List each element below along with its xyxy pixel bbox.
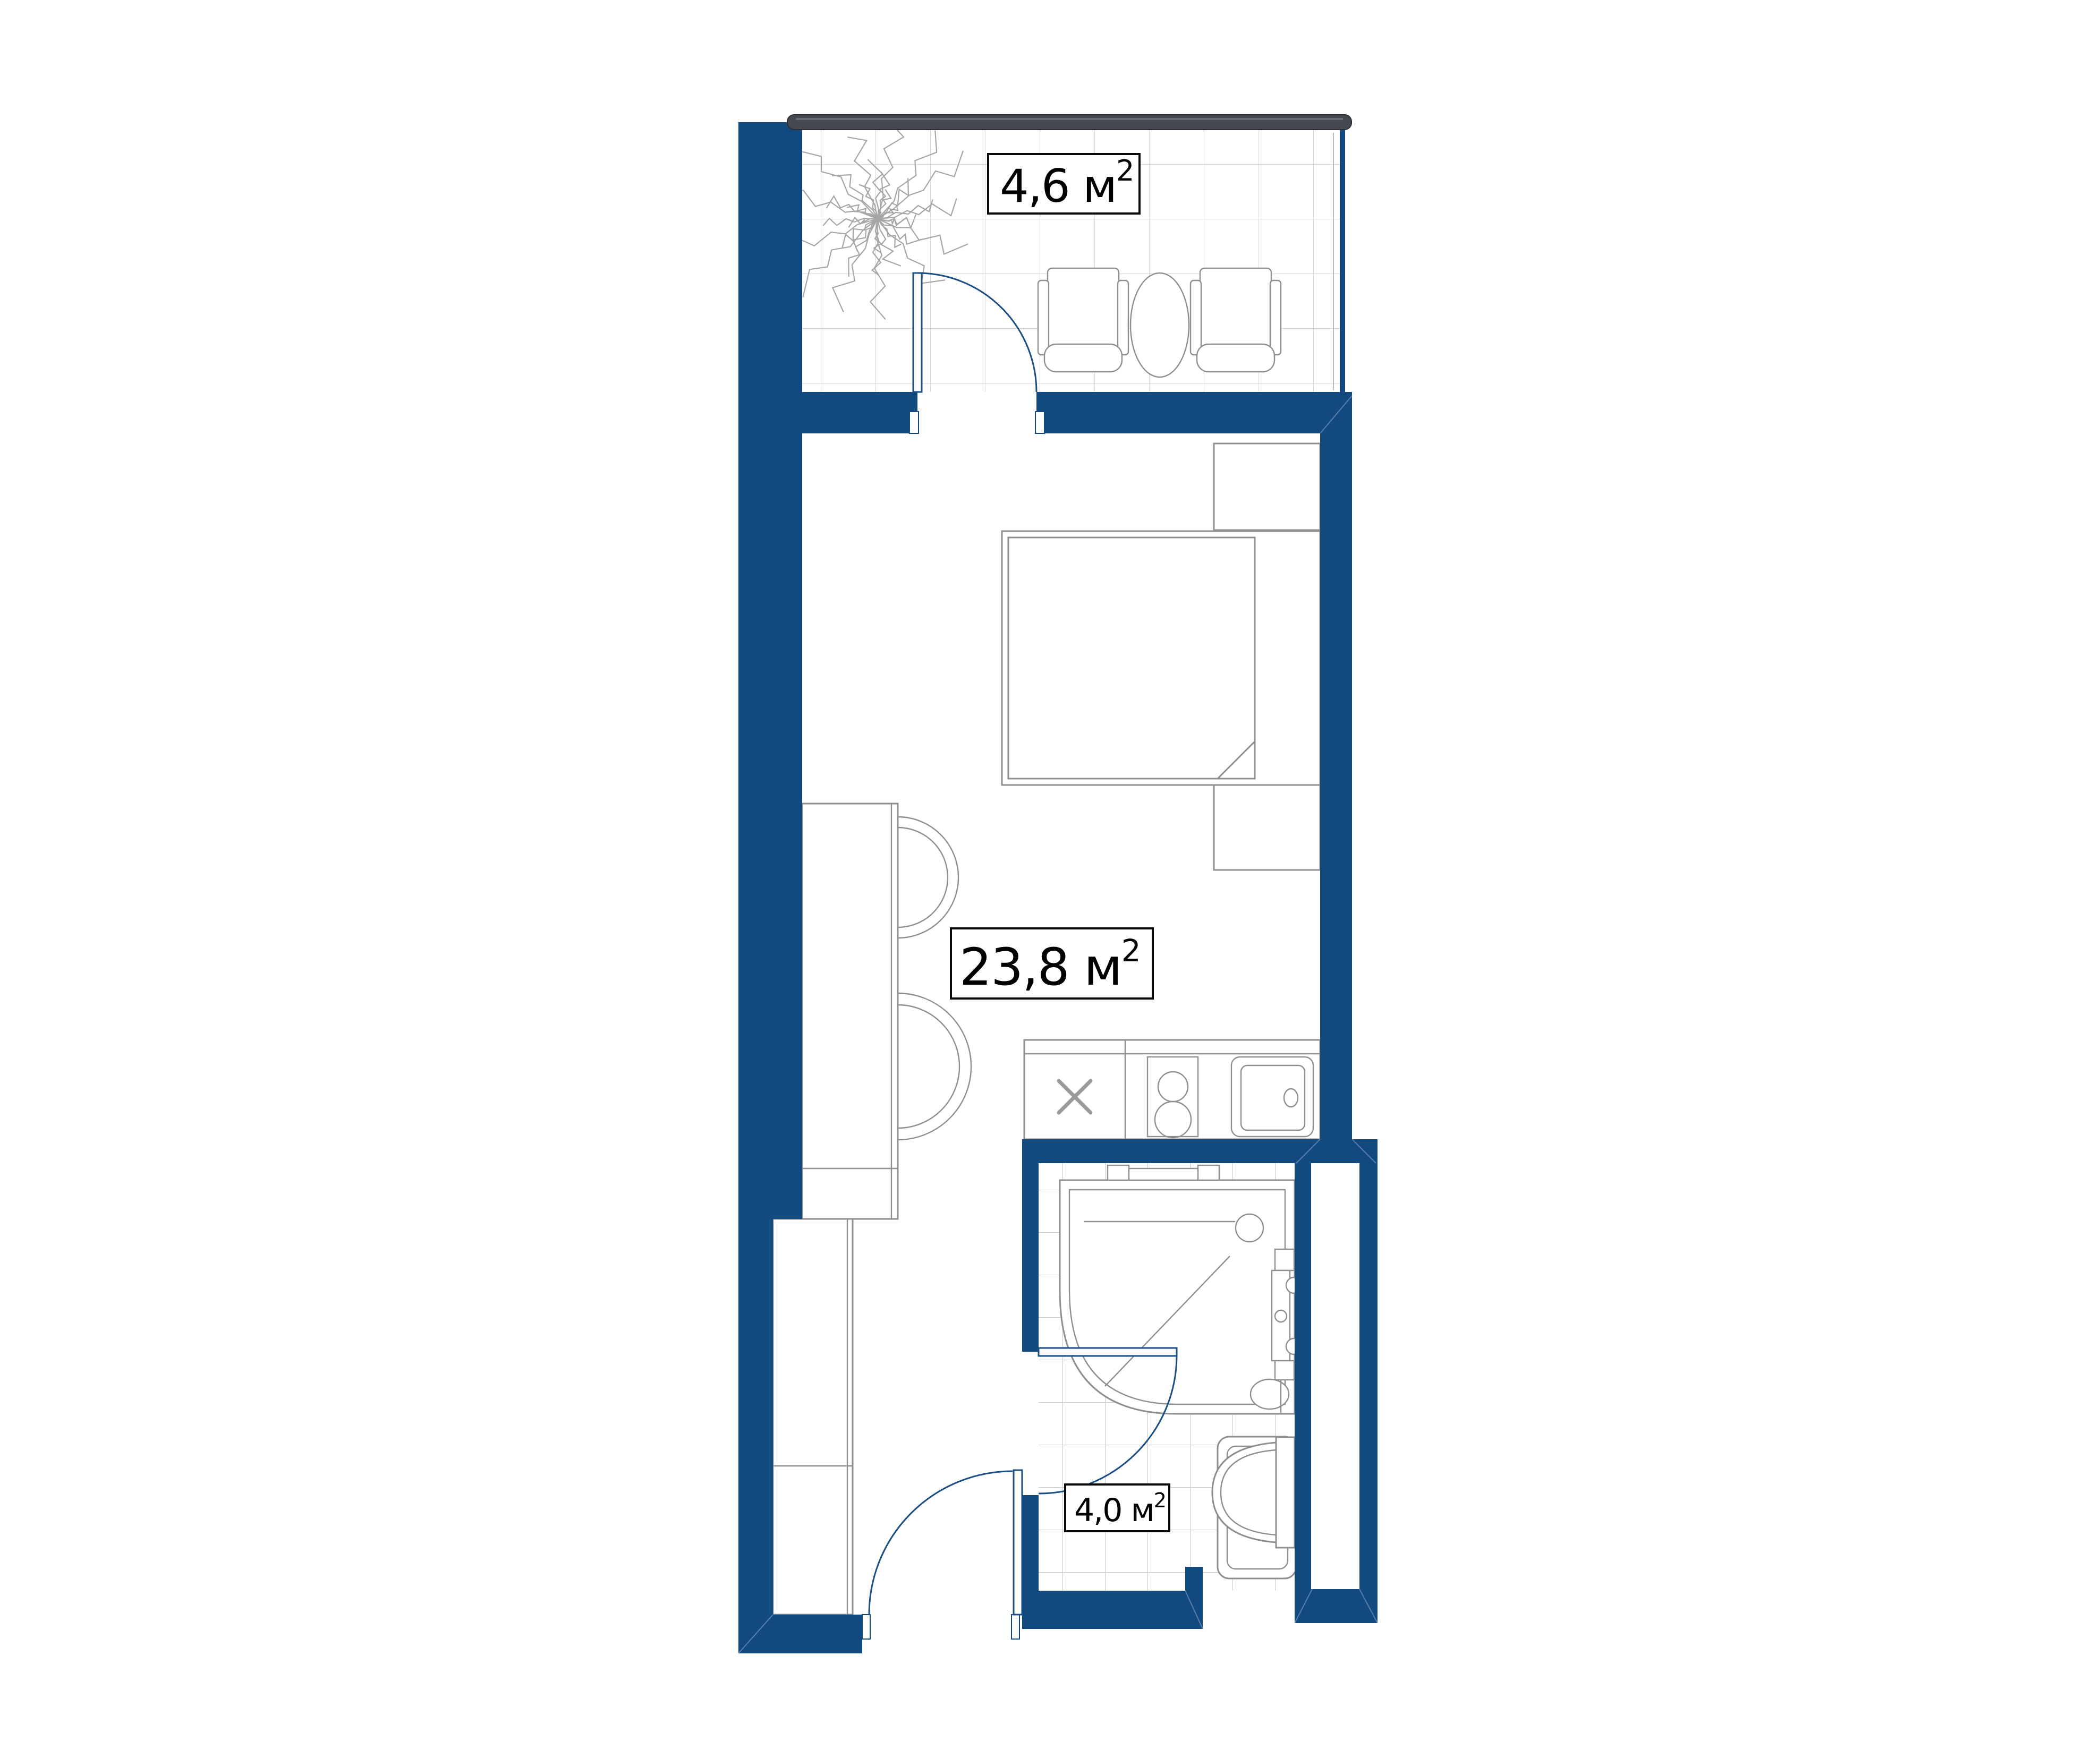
wall-bathroom-left-upper [1022,1163,1039,1352]
svg-text:4,6 м2: 4,6 м2 [1000,154,1133,213]
entry-door-swing-arc [869,1471,1013,1615]
nightstand-top-icon [1214,443,1320,530]
armchair-left-icon [1038,268,1128,372]
wardrobe-icon [802,804,971,1219]
svg-text:4,0 м2: 4,0 м2 [1074,1489,1166,1529]
wall-entry-band-left [738,1615,862,1653]
wall-left-upper [738,122,802,1219]
wall-left-lower [738,1219,773,1653]
entry-door-jamb-right [1011,1615,1019,1639]
armchair-right-icon [1191,268,1281,372]
balcony-door-leaf [913,273,922,392]
floor-plan: 4,6 м2 23,8 м2 4,0 м2 [0,0,2100,1741]
hob-two-burner-icon [1147,1057,1198,1138]
balcony-right-frame [1340,130,1345,392]
hall-closet-icon [773,1219,853,1615]
double-bed-icon [1002,531,1320,785]
balcony-door-jamb-left [909,412,919,433]
nightstand-bottom-icon [1214,785,1320,870]
oval-table-icon [1130,273,1189,377]
wall-shaft-left-column [1295,1163,1311,1623]
bathroom-door-leaf [1039,1348,1177,1356]
shower-cabin-icon [1060,1165,1302,1414]
living-room-area-label: 23,8 м2 [951,928,1153,998]
svg-text:23,8 м2: 23,8 м2 [959,933,1140,997]
bathroom-area-label: 4,0 м2 [1065,1484,1169,1531]
wall-kitchen-bathroom-band [1022,1139,1378,1163]
wall-balcony-right-segment [1036,392,1352,433]
wall-right-outer-column [1359,1163,1378,1623]
entry-door-leaf [1014,1470,1022,1615]
balcony-area-label: 4,6 м2 [988,154,1140,214]
wall-bathroom-bottom-band [1022,1591,1185,1629]
entry-door-jamb-left [862,1615,870,1639]
balcony-window-icon [787,115,1351,130]
balcony-door-jamb-right [1035,412,1044,433]
wall-balcony-left-segment [802,392,917,433]
wall-shaft-bottom-band [1295,1589,1378,1623]
wall-bathroom-bottom-stub [1185,1567,1203,1629]
wall-right-upper [1320,392,1352,1139]
kitchen-sink-icon [1231,1057,1313,1137]
kitchen-counter [1024,1040,1320,1139]
